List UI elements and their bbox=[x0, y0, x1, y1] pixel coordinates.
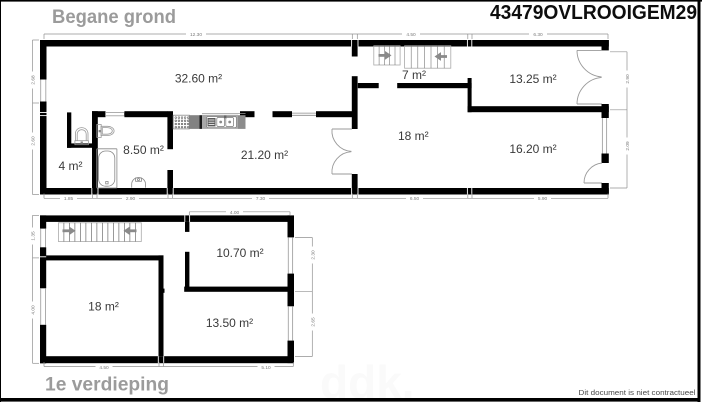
svg-text:2.30: 2.30 bbox=[310, 250, 316, 260]
svg-text:ddk.: ddk. bbox=[320, 356, 415, 402]
svg-text:Begane grond: Begane grond bbox=[52, 6, 176, 28]
svg-text:2.90: 2.90 bbox=[625, 74, 631, 84]
svg-text:12.30: 12.30 bbox=[190, 32, 202, 38]
svg-text:18 m²: 18 m² bbox=[398, 129, 429, 143]
svg-text:5.90: 5.90 bbox=[538, 196, 548, 202]
svg-text:2.68: 2.68 bbox=[31, 75, 37, 85]
svg-text:7.30: 7.30 bbox=[256, 196, 266, 202]
svg-text:6.50: 6.50 bbox=[410, 196, 420, 202]
svg-text:32.60 m²: 32.60 m² bbox=[175, 72, 222, 86]
svg-text:1.35: 1.35 bbox=[31, 231, 37, 241]
svg-text:13.25 m²: 13.25 m² bbox=[509, 72, 556, 86]
svg-text:Dit document is niet contractu: Dit document is niet contractueel bbox=[579, 388, 696, 397]
svg-text:2.60: 2.60 bbox=[31, 136, 37, 146]
svg-text:4.00: 4.00 bbox=[230, 210, 240, 216]
svg-text:1.85: 1.85 bbox=[64, 196, 74, 202]
svg-text:13.50 m²: 13.50 m² bbox=[206, 316, 253, 330]
svg-text:18 m²: 18 m² bbox=[88, 299, 119, 313]
svg-text:4.50: 4.50 bbox=[406, 32, 416, 38]
svg-text:21.20 m²: 21.20 m² bbox=[241, 148, 288, 162]
svg-text:10.70 m²: 10.70 m² bbox=[216, 246, 263, 260]
svg-text:16.20 m²: 16.20 m² bbox=[509, 142, 556, 156]
svg-text:4 m²: 4 m² bbox=[59, 159, 83, 173]
svg-text:2.90: 2.90 bbox=[126, 196, 136, 202]
svg-text:6.30: 6.30 bbox=[533, 32, 543, 38]
svg-text:7 m²: 7 m² bbox=[402, 68, 426, 82]
svg-text:4.50: 4.50 bbox=[99, 365, 109, 371]
svg-text:2.09: 2.09 bbox=[625, 141, 631, 151]
svg-text:8.50 m²: 8.50 m² bbox=[123, 143, 164, 157]
svg-text:5.10: 5.10 bbox=[261, 365, 271, 371]
svg-text:1e verdieping: 1e verdieping bbox=[45, 374, 169, 396]
svg-text:43479OVLROOIGEM29: 43479OVLROOIGEM29 bbox=[490, 1, 697, 24]
svg-text:2.65: 2.65 bbox=[310, 317, 316, 327]
svg-text:4.00: 4.00 bbox=[31, 305, 37, 315]
